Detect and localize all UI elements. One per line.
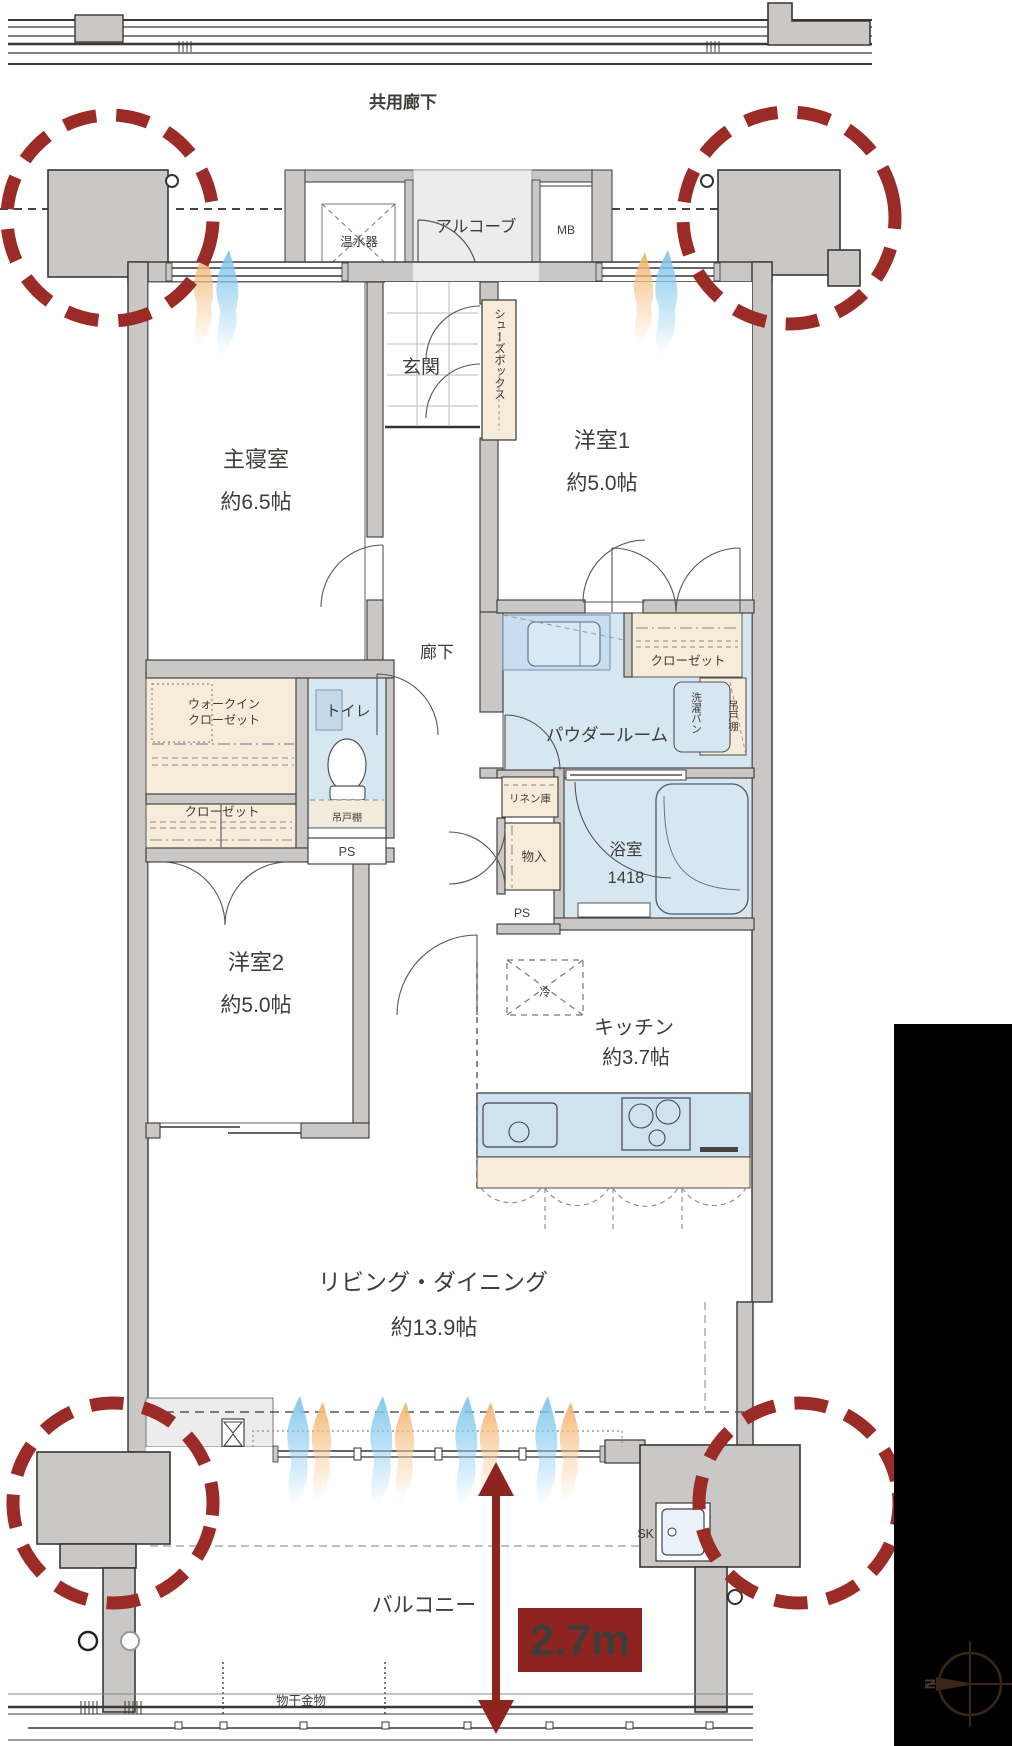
water-heater-label: 温水器 <box>340 235 378 249</box>
flame-orange-icon <box>312 1402 331 1503</box>
bedroom-closet-label: クローゼット <box>184 805 259 819</box>
compass-north-label: N <box>922 1679 939 1690</box>
living-dining-size: 約13.9帖 <box>391 1315 478 1340</box>
floor-plan-page: 共用廊下 温水器 アルコーブ MB <box>0 0 1012 1746</box>
flame-orange-icon <box>395 1402 414 1503</box>
western1-size: 約5.0帖 <box>566 472 637 495</box>
washer-pan-label: 洗濯パン <box>690 692 702 734</box>
floor-plan-drawing: 共用廊下 温水器 アルコーブ MB <box>0 0 1012 1746</box>
depth-annotation: 2.7m <box>478 1462 642 1734</box>
depth-value: 2.7m <box>530 1616 630 1665</box>
alcove-label: アルコーブ <box>435 216 516 236</box>
powder-cupboard-label: 吊戸棚 <box>727 700 739 732</box>
bathroom-size: 1418 <box>608 869 645 887</box>
toilet-label: トイレ <box>325 703 370 720</box>
drain-circle-light <box>121 1632 139 1650</box>
wic-label-2: クローゼット <box>188 713 260 727</box>
western2-label: 洋室2 <box>228 950 284 975</box>
master-bedroom-size: 約6.5帖 <box>220 491 291 514</box>
balcony-drain-circle <box>728 1590 742 1604</box>
toilet-cupboard-label: 吊戸棚 <box>332 811 362 824</box>
pipe-space-right-label: PS <box>514 906 530 920</box>
powder-room-label: パウダールーム <box>546 725 668 745</box>
slop-sink-label: SK <box>637 1527 654 1541</box>
bedroom-window <box>166 263 348 281</box>
living-dining-label: リビング・ダイニング <box>318 1269 548 1295</box>
kitchen-size: 約3.7帖 <box>602 1046 670 1069</box>
kitchen-label: キッチン <box>594 1017 674 1039</box>
hallway-label: 廊下 <box>420 643 454 662</box>
meter-box-label: MB <box>557 223 575 237</box>
flame-blue-icon <box>535 1396 557 1507</box>
common-corridor-label: 共用廊下 <box>369 92 437 112</box>
pillar-bottom-left <box>37 1452 170 1712</box>
black-mask-block <box>894 1024 1012 1746</box>
western1-label: 洋室1 <box>574 428 630 453</box>
entrance-label: 玄関 <box>402 356 440 378</box>
storage-label: 物入 <box>521 850 547 864</box>
linen-label: リネン庫 <box>509 792 551 805</box>
pillar-top-left <box>48 170 178 277</box>
corridor-structure <box>8 3 872 64</box>
laundry-hardware-label: 物干金物 <box>276 1693 326 1708</box>
western1-closet-label: クローゼット <box>650 654 725 668</box>
western2-sliding-door <box>160 1127 301 1133</box>
pipe-space-left-label: PS <box>339 845 356 859</box>
entrance-threshold <box>413 263 539 281</box>
refrigerator-label: 冷 <box>539 986 551 999</box>
pillar-bottom-right <box>640 1445 800 1712</box>
bathroom-label: 浴室 <box>610 840 643 859</box>
shoes-box: シューズボックス <box>482 300 516 440</box>
wic-label-1: ウォークイン <box>188 697 260 711</box>
flame-orange-icon <box>560 1402 579 1503</box>
master-bedroom-label: 主寝室 <box>223 447 289 472</box>
shoes-box-label: シューズボックス <box>493 308 506 400</box>
western2-size: 約5.0帖 <box>220 994 291 1017</box>
flame-blue-icon <box>370 1396 392 1507</box>
balcony-label: バルコニー <box>372 1594 477 1617</box>
drain-circle-dark <box>79 1632 97 1650</box>
kitchen-area: 冷 <box>477 960 750 1230</box>
